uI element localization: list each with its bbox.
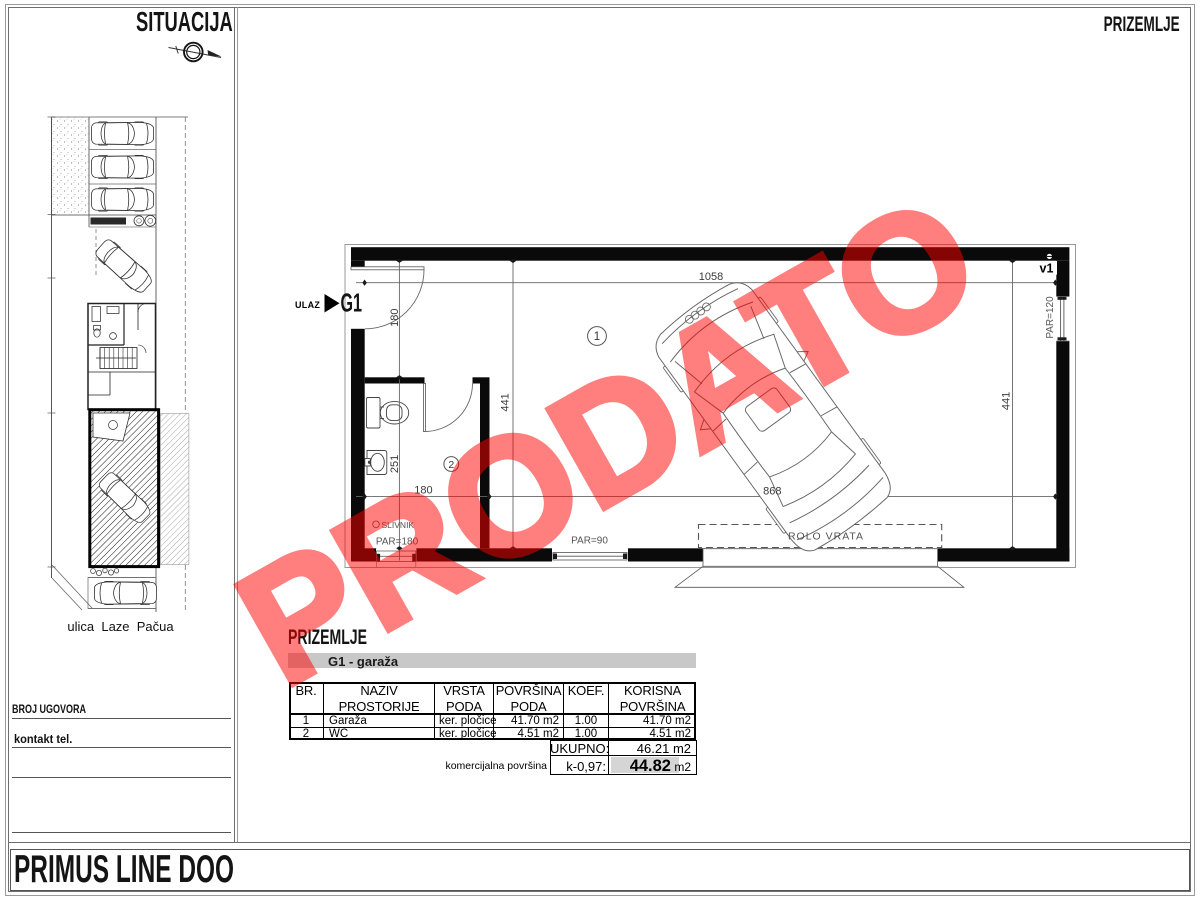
svg-text:v1: v1 bbox=[1040, 261, 1054, 275]
svg-text:1: 1 bbox=[594, 331, 600, 343]
svg-text:441: 441 bbox=[500, 393, 512, 411]
svg-text:180: 180 bbox=[389, 309, 401, 327]
svg-text:180: 180 bbox=[414, 485, 432, 497]
svg-text:868: 868 bbox=[763, 486, 781, 498]
svg-text:PAR=120: PAR=120 bbox=[1045, 296, 1056, 339]
svg-text:SLIVNIK: SLIVNIK bbox=[382, 520, 415, 530]
svg-text:ulica Laze Pačua: ulica Laze Pačua bbox=[67, 619, 174, 634]
svg-text:ULAZ: ULAZ bbox=[295, 300, 320, 310]
svg-text:PAR=90: PAR=90 bbox=[571, 536, 608, 547]
svg-text:G1: G1 bbox=[341, 287, 363, 317]
svg-text:1058: 1058 bbox=[699, 271, 723, 283]
svg-text:251: 251 bbox=[389, 455, 401, 473]
svg-text:2: 2 bbox=[448, 459, 454, 471]
svg-text:441: 441 bbox=[1001, 392, 1013, 410]
svg-text:ROLO VRATA: ROLO VRATA bbox=[788, 531, 864, 543]
svg-text:PAR=180: PAR=180 bbox=[376, 537, 419, 548]
